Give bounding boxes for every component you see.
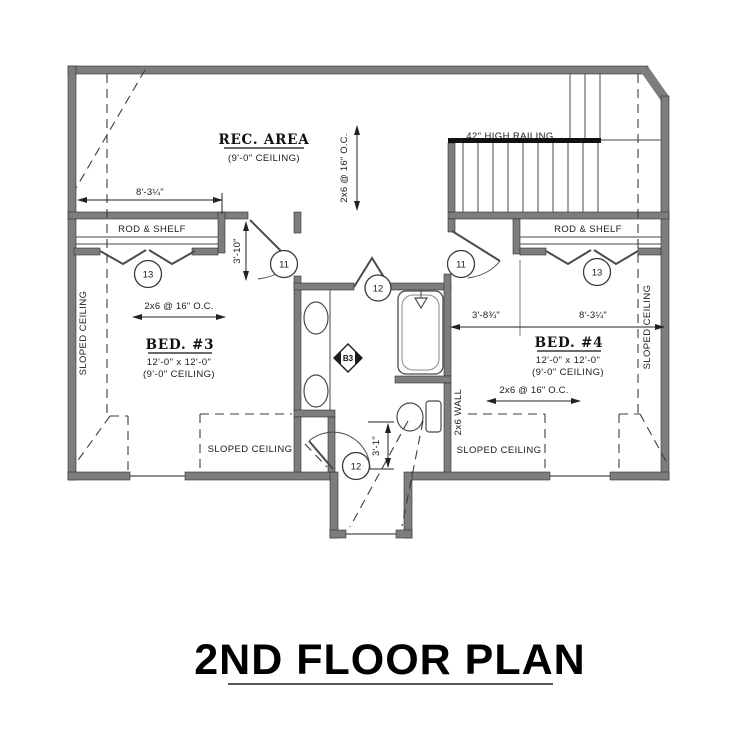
wall-stair-bottom: [448, 212, 669, 219]
floor-plan-page: 8'-3¼" 3'-10" 3'-8¾" 8'-3¼" 3'-1" 2x6 @ …: [0, 0, 750, 740]
dormer-jamb-left: [330, 530, 346, 538]
wall-closet4-bottom-right: [638, 248, 661, 255]
wall-stairwell-left: [448, 143, 455, 212]
section-marker-b3: B3: [343, 354, 354, 363]
dim-bed4-left-label: 3'-8¾": [472, 310, 500, 321]
door-tag-13: 13: [143, 270, 154, 281]
section-marker-tip: [355, 352, 362, 365]
rod-shelf-label-right: ROD & SHELF: [554, 224, 622, 235]
wall-closet3-bottom-left: [74, 248, 100, 255]
closets: [76, 237, 661, 264]
wall-closet3-bottom-right: [192, 248, 218, 255]
sloped-ceiling-label-bottom-right: SLOPED CEILING: [457, 445, 542, 456]
windows: [130, 476, 610, 534]
wall-hall-stub-left: [294, 212, 301, 233]
sloped-ceiling-label-left: SLOPED CEILING: [78, 291, 89, 376]
wall-top: [68, 66, 648, 74]
slope-line: [76, 416, 110, 463]
door-tag-12: 12: [351, 462, 362, 473]
toilet-tank-icon: [426, 401, 441, 432]
dim-hall-label: 3'-10": [232, 238, 243, 263]
sink-icon: [304, 302, 328, 334]
wall-closet3-jamb: [218, 212, 225, 253]
bed3-size: 12'-0" x 12'-0": [147, 357, 211, 368]
room-labels: REC. AREA (9'-0" CEILING) 42" HIGH RAILI…: [78, 131, 653, 456]
dim-bed4-right-label: 8'-3¼": [579, 310, 607, 321]
wall-closet4-bottom-left: [520, 248, 546, 255]
wall-bottom-1: [68, 472, 130, 480]
door-tag-11: 11: [279, 260, 289, 271]
stairs: [448, 74, 661, 212]
wall-tub-right: [444, 274, 451, 376]
wall-bath-top-left: [294, 283, 354, 290]
bed4-title: BED. #4: [535, 335, 604, 351]
wall-right: [661, 96, 669, 480]
page-title: 2ND FLOOR PLAN: [194, 636, 585, 684]
door-tag-12: 12: [373, 284, 384, 295]
bed4-size: 12'-0" x 12'-0": [536, 355, 600, 366]
wall-hall-stub-right: [448, 219, 455, 232]
sloped-ceiling-label-right: SLOPED CEILING: [642, 285, 653, 370]
wall-bath-top-right: [390, 283, 451, 290]
dim-nook-label: 3'-1": [371, 436, 382, 456]
slope-line: [305, 444, 327, 467]
wall-bottom-3: [412, 472, 550, 480]
dormer-wall-left: [330, 472, 338, 538]
wall-closet4-left: [513, 219, 520, 254]
dim-closet3-label: 8'-3¼": [136, 187, 164, 198]
door-tag-11: 11: [456, 260, 466, 271]
bed4-ceiling: (9'-0" CEILING): [532, 367, 604, 378]
dormer-jamb-right: [396, 530, 412, 538]
bed3-title: BED. #3: [146, 337, 215, 353]
sloped-ceiling-label-bottom-left: SLOPED CEILING: [208, 444, 293, 455]
framing-label-rec: 2x6 @ 16" O.C.: [339, 133, 350, 202]
sink-icon: [304, 375, 328, 407]
framing-label-bed4: 2x6 @ 16" O.C.: [499, 385, 568, 396]
wall-left: [68, 66, 76, 480]
wall-bottom-2: [185, 472, 332, 480]
wall-linen-left: [294, 417, 301, 472]
toilet-bowl-icon: [397, 403, 423, 431]
wall-bath-left: [294, 276, 301, 412]
rec-area-ceiling: (9'-0" CEILING): [228, 153, 300, 164]
wall-chamfer-corner: [645, 70, 666, 100]
slope-line: [76, 70, 145, 188]
floor-plan-drawing: 8'-3¼" 3'-10" 3'-8¾" 8'-3¼" 3'-1" 2x6 @ …: [0, 0, 750, 740]
door-tag-13: 13: [592, 268, 603, 279]
sheet-title: 2ND FLOOR PLAN: [194, 636, 585, 684]
framing-label-bed3: 2x6 @ 16" O.C.: [144, 301, 213, 312]
railing-label: 42" HIGH RAILING: [466, 131, 553, 142]
wall-bath-lower-right: [444, 383, 451, 472]
wall-under-tub: [395, 376, 451, 383]
wall-vanity-bottom: [294, 410, 335, 417]
bed3-ceiling: (9'-0" CEILING): [143, 369, 215, 380]
rod-shelf-label-left: ROD & SHELF: [118, 224, 186, 235]
section-marker-tip: [334, 352, 341, 365]
wall-bottom-4: [610, 472, 669, 480]
wall-2x6-label: 2x6 WALL: [453, 389, 464, 436]
rec-area-title: REC. AREA: [218, 132, 309, 148]
